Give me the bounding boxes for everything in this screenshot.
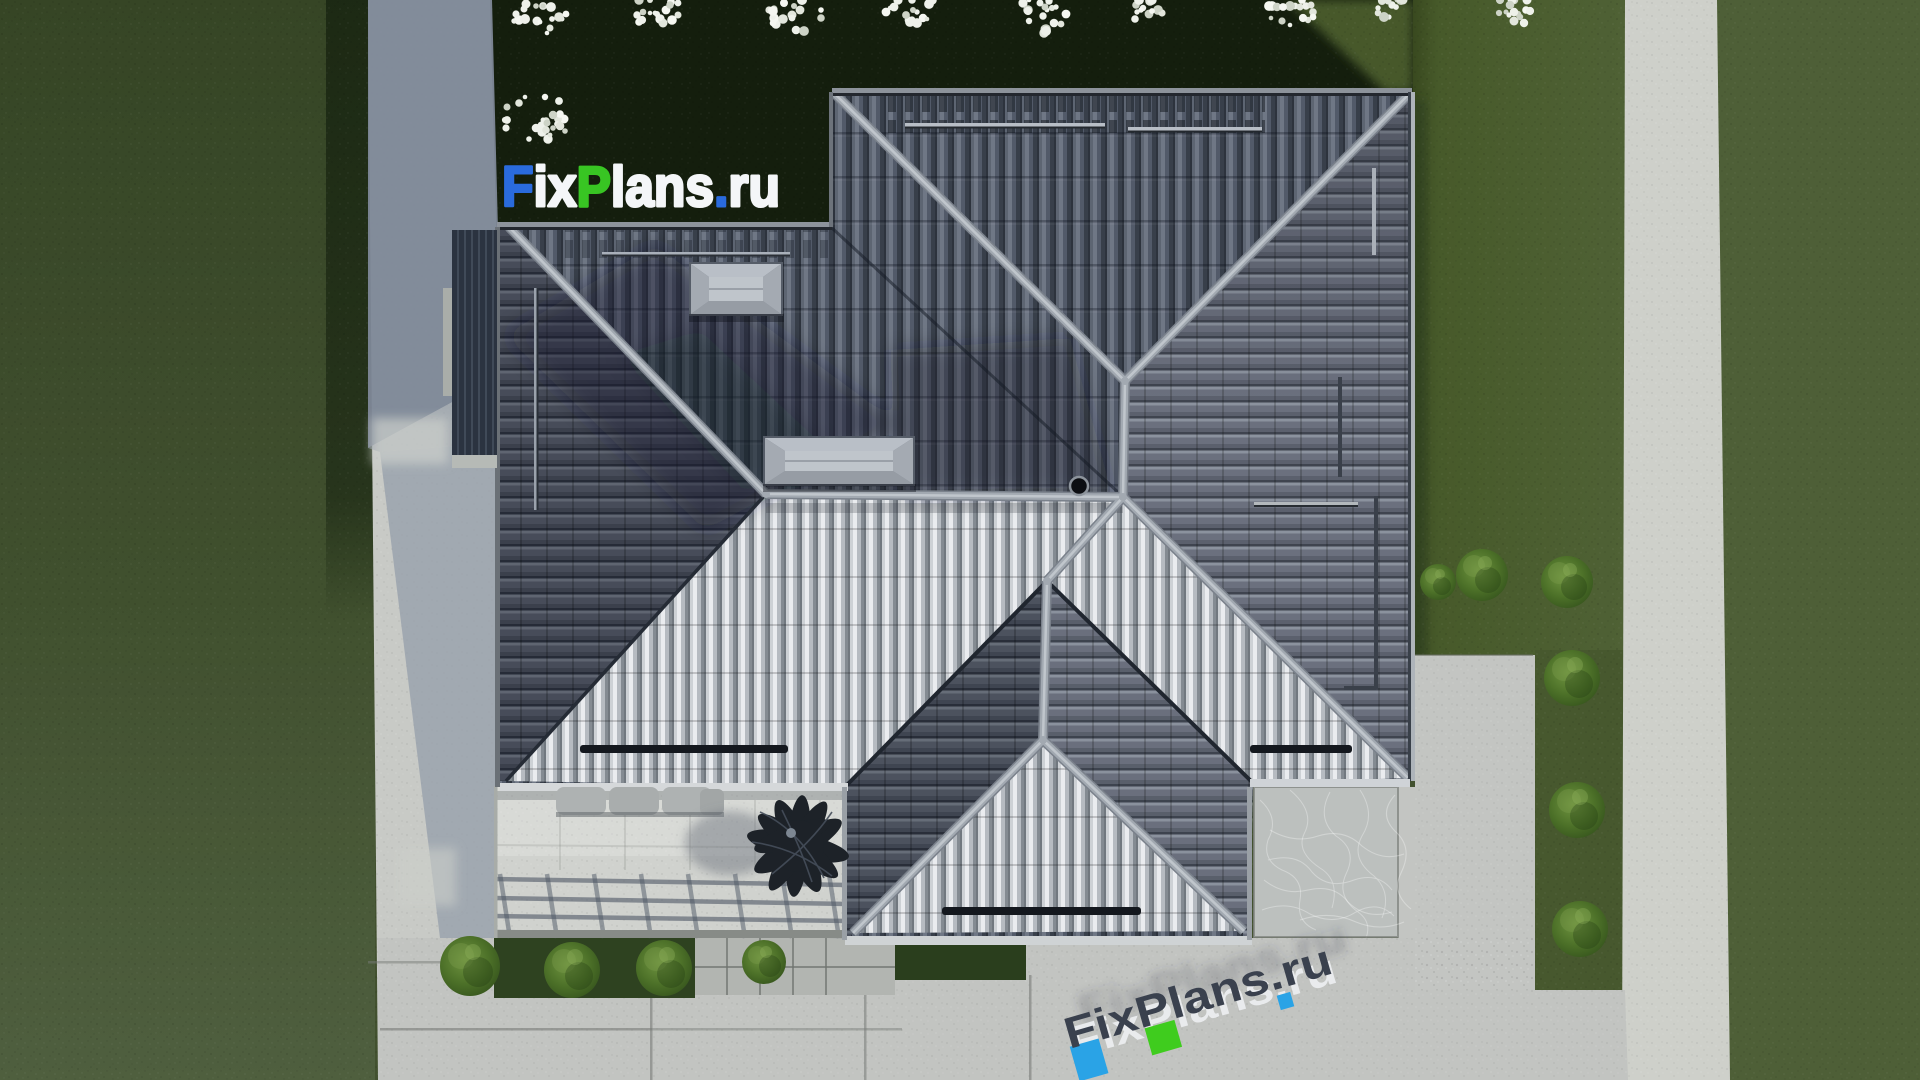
svg-text:FixPlans.ru: FixPlans.ru — [502, 155, 780, 219]
